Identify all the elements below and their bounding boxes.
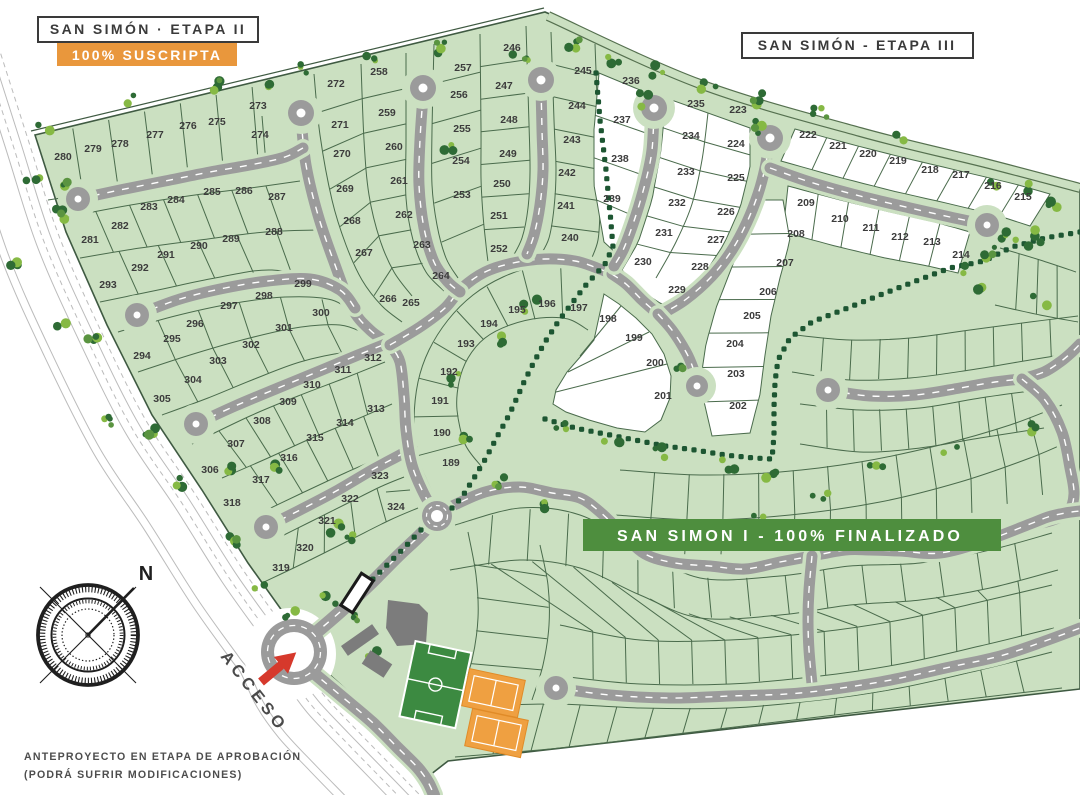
svg-text:291: 291 xyxy=(157,249,175,261)
svg-text:194: 194 xyxy=(480,318,498,330)
svg-text:294: 294 xyxy=(133,350,151,362)
svg-text:298: 298 xyxy=(255,290,273,302)
svg-text:303: 303 xyxy=(209,355,227,367)
svg-text:323: 323 xyxy=(371,470,389,482)
svg-text:306: 306 xyxy=(201,464,219,476)
svg-text:199: 199 xyxy=(625,332,643,344)
svg-text:278: 278 xyxy=(111,138,129,150)
svg-text:277: 277 xyxy=(146,129,164,141)
svg-text:286: 286 xyxy=(235,185,253,197)
svg-text:100% SUSCRIPTA: 100% SUSCRIPTA xyxy=(72,47,222,63)
svg-text:200: 200 xyxy=(646,357,664,369)
svg-text:280: 280 xyxy=(54,151,72,163)
svg-text:227: 227 xyxy=(707,234,725,246)
svg-text:245: 245 xyxy=(574,65,592,77)
svg-text:206: 206 xyxy=(759,286,777,298)
svg-text:304: 304 xyxy=(184,374,202,386)
svg-text:296: 296 xyxy=(186,318,204,330)
svg-text:261: 261 xyxy=(390,175,408,187)
svg-text:248: 248 xyxy=(500,114,518,126)
svg-text:246: 246 xyxy=(503,42,521,54)
svg-text:310: 310 xyxy=(303,379,321,391)
svg-text:266: 266 xyxy=(379,293,397,305)
svg-text:219: 219 xyxy=(889,155,907,167)
svg-text:311: 311 xyxy=(335,364,352,376)
svg-text:279: 279 xyxy=(84,143,102,155)
svg-text:225: 225 xyxy=(727,172,745,184)
svg-text:316: 316 xyxy=(280,452,298,464)
svg-text:224: 224 xyxy=(727,138,745,150)
svg-text:212: 212 xyxy=(891,231,909,243)
svg-text:230: 230 xyxy=(634,256,652,268)
svg-text:229: 229 xyxy=(668,284,686,296)
svg-text:204: 204 xyxy=(726,338,744,350)
svg-text:282: 282 xyxy=(111,220,129,232)
svg-text:292: 292 xyxy=(131,262,149,274)
svg-text:191: 191 xyxy=(431,395,449,407)
svg-text:251: 251 xyxy=(490,210,508,222)
svg-text:215: 215 xyxy=(1014,191,1032,203)
svg-text:213: 213 xyxy=(923,236,941,248)
svg-text:235: 235 xyxy=(687,98,705,110)
svg-text:264: 264 xyxy=(432,270,450,282)
svg-text:256: 256 xyxy=(450,89,468,101)
svg-text:269: 269 xyxy=(336,183,354,195)
svg-text:297: 297 xyxy=(220,300,238,312)
svg-text:314: 314 xyxy=(336,417,354,429)
svg-text:275: 275 xyxy=(208,116,226,128)
svg-text:263: 263 xyxy=(413,239,431,251)
svg-text:207: 207 xyxy=(776,257,794,269)
svg-text:268: 268 xyxy=(343,215,361,227)
svg-text:301: 301 xyxy=(275,322,293,334)
svg-text:202: 202 xyxy=(729,400,747,412)
svg-text:272: 272 xyxy=(327,78,345,90)
svg-text:271: 271 xyxy=(331,119,349,131)
svg-text:SAN SIMON I - 100% FINALIZADO: SAN SIMON I - 100% FINALIZADO xyxy=(617,528,963,545)
svg-text:313: 313 xyxy=(367,403,385,415)
svg-text:265: 265 xyxy=(402,297,420,309)
svg-text:309: 309 xyxy=(279,396,297,408)
svg-text:231: 231 xyxy=(655,227,673,239)
svg-text:214: 214 xyxy=(952,249,970,261)
svg-text:220: 220 xyxy=(859,148,877,160)
svg-text:238: 238 xyxy=(611,153,629,165)
svg-text:284: 284 xyxy=(167,194,185,206)
svg-text:217: 217 xyxy=(952,169,970,181)
svg-text:324: 324 xyxy=(387,501,405,513)
svg-text:ANTEPROYECTO EN ETAPA DE APROB: ANTEPROYECTO EN ETAPA DE APROBACIÓN xyxy=(24,750,301,763)
svg-text:234: 234 xyxy=(682,130,700,142)
svg-text:321: 321 xyxy=(318,515,336,527)
svg-text:320: 320 xyxy=(296,542,314,554)
svg-text:281: 281 xyxy=(81,234,99,246)
svg-text:232: 232 xyxy=(668,197,686,209)
svg-text:274: 274 xyxy=(251,129,269,141)
svg-text:258: 258 xyxy=(370,66,388,78)
svg-text:(PODRÁ SUFRIR MODIFICACIONES): (PODRÁ SUFRIR MODIFICACIONES) xyxy=(24,768,242,781)
svg-text:222: 222 xyxy=(799,129,817,141)
svg-text:253: 253 xyxy=(453,189,471,201)
svg-text:293: 293 xyxy=(99,279,117,291)
svg-text:307: 307 xyxy=(227,438,245,450)
svg-text:241: 241 xyxy=(557,200,575,212)
svg-text:249: 249 xyxy=(499,148,517,160)
svg-text:237: 237 xyxy=(613,114,631,126)
svg-text:210: 210 xyxy=(831,213,849,225)
svg-text:228: 228 xyxy=(691,261,709,273)
svg-text:203: 203 xyxy=(727,368,745,380)
svg-text:205: 205 xyxy=(743,310,761,322)
svg-text:193: 193 xyxy=(457,338,475,350)
svg-text:255: 255 xyxy=(453,123,471,135)
svg-text:302: 302 xyxy=(242,339,260,351)
svg-text:322: 322 xyxy=(341,493,359,505)
svg-text:216: 216 xyxy=(984,180,1002,192)
svg-text:221: 221 xyxy=(829,140,847,152)
svg-text:283: 283 xyxy=(140,201,158,213)
svg-text:218: 218 xyxy=(921,164,939,176)
svg-text:242: 242 xyxy=(558,167,576,179)
svg-text:192: 192 xyxy=(440,366,458,378)
svg-text:211: 211 xyxy=(863,222,880,234)
svg-text:189: 189 xyxy=(442,457,460,469)
svg-text:262: 262 xyxy=(395,209,413,221)
svg-text:243: 243 xyxy=(563,134,581,146)
svg-text:197: 197 xyxy=(570,302,588,314)
svg-text:312: 312 xyxy=(364,352,382,364)
svg-text:267: 267 xyxy=(355,247,373,259)
svg-text:SAN SIMÓN - ETAPA III: SAN SIMÓN - ETAPA III xyxy=(758,36,956,53)
svg-text:289: 289 xyxy=(222,233,240,245)
svg-text:233: 233 xyxy=(677,166,695,178)
svg-text:226: 226 xyxy=(717,206,735,218)
svg-text:198: 198 xyxy=(599,313,617,325)
svg-text:236: 236 xyxy=(622,75,640,87)
svg-text:260: 260 xyxy=(385,141,403,153)
svg-text:318: 318 xyxy=(223,497,241,509)
svg-text:276: 276 xyxy=(179,120,197,132)
svg-text:259: 259 xyxy=(378,107,396,119)
svg-text:252: 252 xyxy=(490,243,508,255)
svg-text:223: 223 xyxy=(729,104,747,116)
svg-text:305: 305 xyxy=(153,393,171,405)
svg-text:190: 190 xyxy=(433,427,451,439)
svg-text:290: 290 xyxy=(190,240,208,252)
svg-text:287: 287 xyxy=(268,191,286,203)
svg-text:288: 288 xyxy=(265,226,283,238)
svg-text:SAN SIMÓN · ETAPA II: SAN SIMÓN · ETAPA II xyxy=(50,20,246,37)
svg-text:240: 240 xyxy=(561,232,579,244)
svg-text:295: 295 xyxy=(163,333,181,345)
svg-text:247: 247 xyxy=(495,80,513,92)
svg-text:209: 209 xyxy=(797,197,815,209)
svg-text:239: 239 xyxy=(603,193,621,205)
svg-text:N: N xyxy=(139,563,153,585)
svg-text:285: 285 xyxy=(203,186,221,198)
svg-text:250: 250 xyxy=(493,178,511,190)
svg-text:317: 317 xyxy=(252,474,270,486)
svg-text:201: 201 xyxy=(654,390,672,402)
svg-text:300: 300 xyxy=(312,307,330,319)
svg-text:315: 315 xyxy=(306,432,324,444)
svg-text:244: 244 xyxy=(568,100,586,112)
svg-text:195: 195 xyxy=(508,304,526,316)
svg-text:270: 270 xyxy=(333,148,351,160)
svg-text:208: 208 xyxy=(787,228,805,240)
svg-text:319: 319 xyxy=(272,562,290,574)
svg-text:273: 273 xyxy=(249,100,267,112)
svg-text:254: 254 xyxy=(452,155,470,167)
svg-text:196: 196 xyxy=(538,298,556,310)
svg-text:308: 308 xyxy=(253,415,271,427)
svg-text:299: 299 xyxy=(294,278,312,290)
svg-text:257: 257 xyxy=(454,62,472,74)
